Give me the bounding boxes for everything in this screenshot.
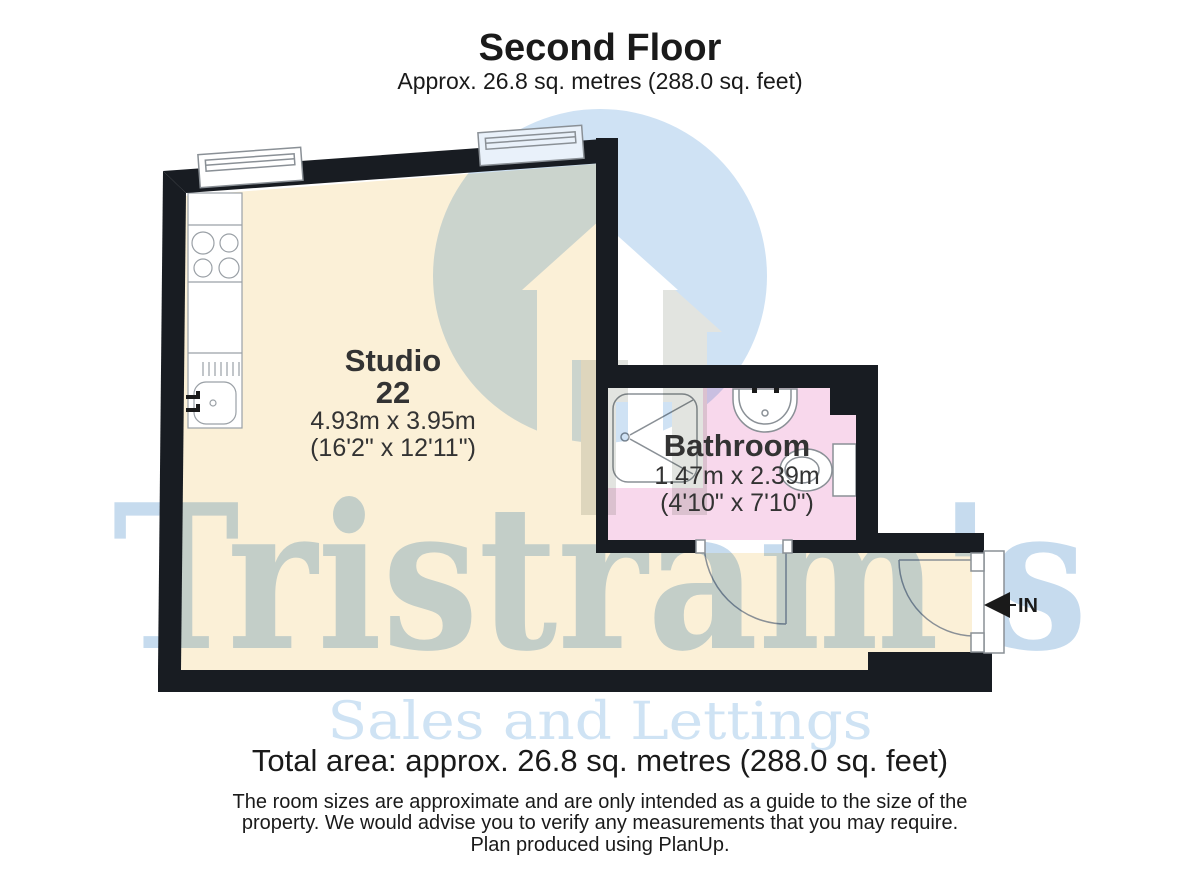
bathroom-name: Bathroom bbox=[664, 428, 810, 463]
wall-hall-top bbox=[878, 533, 984, 553]
entrance-label: IN bbox=[1018, 595, 1038, 617]
total-area-text: Total area: approx. 26.8 sq. metres (288… bbox=[252, 743, 948, 778]
wall-bathroom-right bbox=[856, 365, 878, 553]
disclaimer-line-3: Plan produced using PlanUp. bbox=[470, 834, 729, 856]
floor-plan-canvas: Second Floor Approx. 26.8 sq. metres (28… bbox=[0, 0, 1200, 873]
window-2 bbox=[478, 125, 584, 165]
wall-bottom bbox=[158, 670, 992, 692]
wall-bathroom-bottom-left bbox=[596, 540, 702, 553]
wall-studio-right bbox=[596, 138, 618, 388]
page-subtitle: Approx. 26.8 sq. metres (288.0 sq. feet) bbox=[397, 68, 802, 94]
disclaimer-line-1: The room sizes are approximate and are o… bbox=[233, 791, 968, 813]
disclaimer-line-2: property. We would advise you to verify … bbox=[242, 812, 958, 834]
studio-size-metric: 4.93m x 3.95m bbox=[310, 407, 475, 435]
wall-bathroom-notch bbox=[830, 388, 856, 415]
studio-unit-number: 22 bbox=[376, 375, 410, 410]
wall-bathroom-bottom-right bbox=[786, 540, 878, 553]
page-title: Second Floor bbox=[479, 27, 722, 69]
kitchen-counter bbox=[186, 193, 242, 428]
bathroom-size-metric: 1.47m x 2.39m bbox=[654, 462, 819, 490]
wall-partition bbox=[596, 388, 608, 553]
window-1 bbox=[198, 147, 303, 187]
studio-name: Studio bbox=[345, 343, 441, 378]
floor-plan-page: Second Floor Approx. 26.8 sq. metres (28… bbox=[0, 0, 1200, 873]
bathroom-label: Bathroom 1.47m x 2.39m (4'10" x 7'10") bbox=[654, 428, 819, 517]
wall-bathroom-top bbox=[618, 365, 878, 388]
studio-size-imperial: (16'2" x 12'11") bbox=[310, 434, 476, 462]
wall-step-bottom-right bbox=[868, 652, 992, 672]
bathroom-size-imperial: (4'10" x 7'10") bbox=[660, 489, 814, 517]
